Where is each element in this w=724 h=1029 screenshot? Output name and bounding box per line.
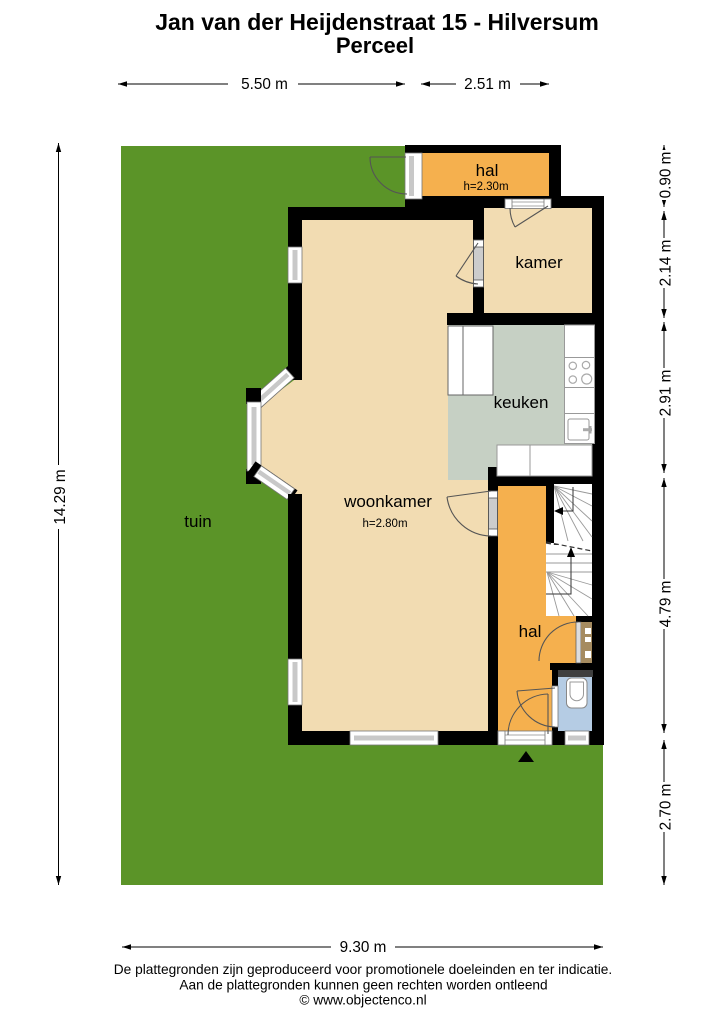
svg-text:Jan van der Heijdenstraat 15 -: Jan van der Heijdenstraat 15 - Hilversum bbox=[155, 9, 599, 35]
svg-text:2.70 m: 2.70 m bbox=[658, 784, 675, 831]
svg-text:4.79 m: 4.79 m bbox=[658, 581, 675, 628]
svg-text:De plattegronden zijn geproduc: De plattegronden zijn geproduceerd voor … bbox=[114, 962, 612, 977]
svg-text:14.29 m: 14.29 m bbox=[52, 469, 69, 524]
svg-text:woonkamer: woonkamer bbox=[343, 492, 432, 511]
svg-text:2.91 m: 2.91 m bbox=[658, 370, 675, 417]
svg-text:kamer: kamer bbox=[515, 253, 563, 272]
svg-text:h=2.30m: h=2.30m bbox=[463, 181, 508, 193]
svg-text:0.90 m: 0.90 m bbox=[658, 152, 675, 199]
svg-text:h=2.80m: h=2.80m bbox=[362, 518, 407, 530]
svg-text:2.14 m: 2.14 m bbox=[658, 240, 675, 287]
svg-text:hal: hal bbox=[519, 622, 542, 641]
svg-text:hal: hal bbox=[476, 161, 499, 180]
svg-text:9.30 m: 9.30 m bbox=[340, 939, 387, 956]
svg-text:keuken: keuken bbox=[494, 393, 549, 412]
svg-text:5.50 m: 5.50 m bbox=[241, 76, 288, 93]
svg-text:© www.objectenco.nl: © www.objectenco.nl bbox=[299, 993, 426, 1008]
svg-text:2.51 m: 2.51 m bbox=[464, 76, 511, 93]
svg-text:tuin: tuin bbox=[184, 512, 211, 531]
svg-text:Aan de plattegronden kunnen ge: Aan de plattegronden kunnen geen rechten… bbox=[179, 978, 547, 993]
svg-text:Perceel: Perceel bbox=[336, 33, 414, 58]
